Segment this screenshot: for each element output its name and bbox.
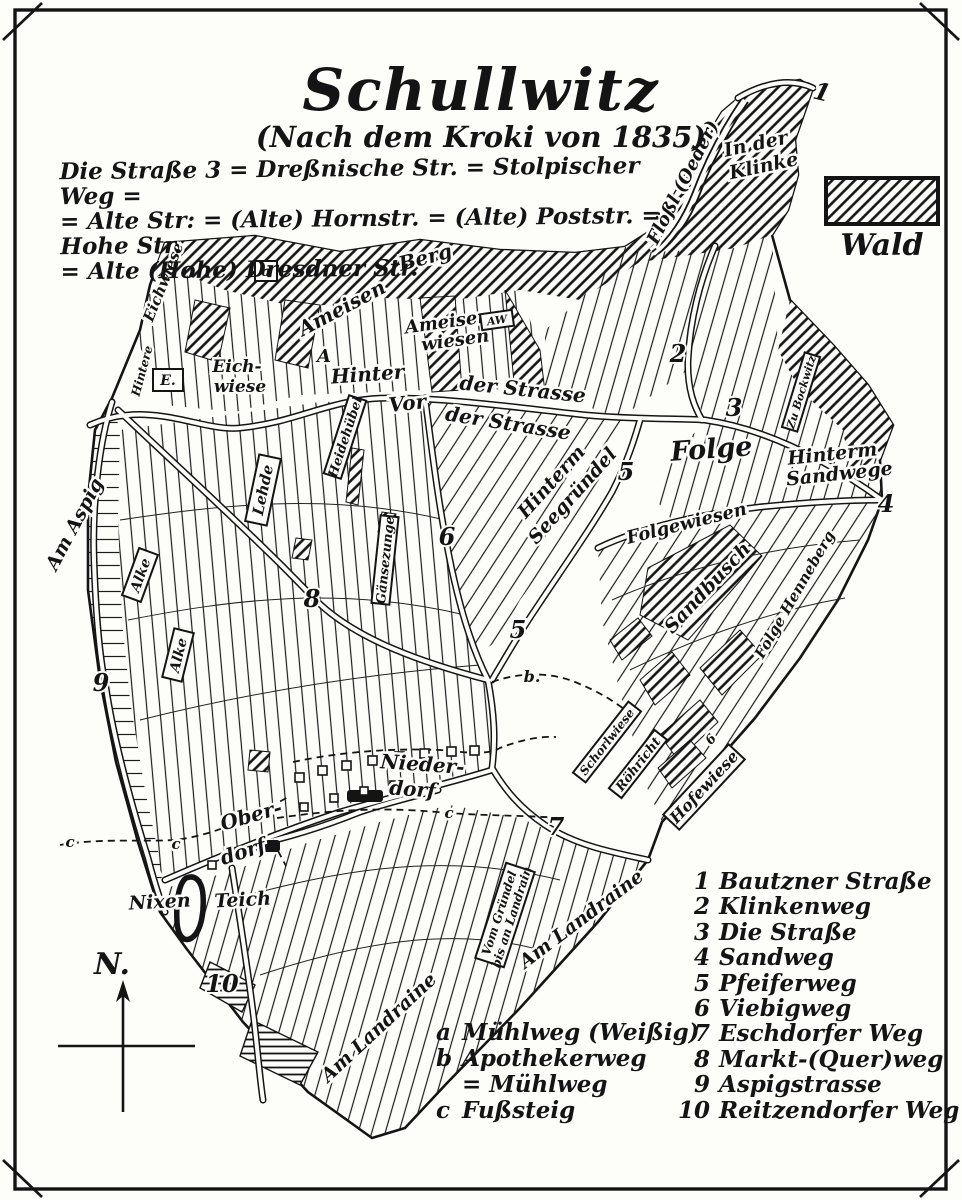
- label-vor: Vor: [387, 389, 428, 417]
- wald-patch: [292, 538, 312, 560]
- road-index-num: 2: [664, 894, 719, 919]
- path-index-key: c: [436, 1098, 462, 1124]
- letter-c-3: c: [65, 833, 74, 851]
- road-index-name: Aspigstrasse: [719, 1072, 882, 1097]
- road-index-num: 1: [664, 869, 719, 894]
- road-index-name: Die Straße: [719, 920, 857, 945]
- road-index-name: Klinkenweg: [719, 894, 871, 919]
- road-index-row: 10Reitzendorfer Weg: [664, 1098, 959, 1123]
- corner-mark-bottom-left: [3, 1160, 42, 1197]
- road-index-row: 4Sandweg: [664, 945, 959, 970]
- road-index-row: 2Klinkenweg: [664, 894, 959, 919]
- path-index: aMühlweg (Weißig) bApothekerweg = Mühlwe…: [436, 1020, 700, 1124]
- compass-north-label: N.: [93, 947, 130, 982]
- road-index: 1Bautzner Straße 2Klinkenweg 3Die Straße…: [664, 869, 959, 1123]
- road-index-name: Sandweg: [719, 945, 834, 970]
- wald-patch: [248, 750, 270, 772]
- road-number-5-lower: 5: [510, 615, 527, 644]
- road-index-name: Reitzendorfer Weg: [719, 1098, 959, 1123]
- road-index-name: Pfeiferweg: [719, 971, 857, 996]
- label-dorf-1: dorf: [388, 775, 439, 802]
- label-aw-box: AW: [480, 310, 514, 330]
- road-number-5-upper: 5: [618, 457, 635, 486]
- legend-wald-label: Wald: [826, 228, 938, 263]
- path-index-key: b: [436, 1046, 462, 1072]
- corner-mark-bottom-right: [920, 1160, 959, 1197]
- letter-b-dot: b.: [524, 667, 541, 686]
- legend-wald-swatch: [826, 178, 938, 224]
- path-index-name: Apothekerweg: [462, 1046, 646, 1072]
- map-subtitle: (Nach dem Kroki von 1835): [0, 120, 962, 154]
- path-index-row: = Mühlweg: [436, 1072, 700, 1098]
- road-number-10: 10: [205, 969, 239, 998]
- road-index-row: 8Markt-(Quer)weg: [664, 1047, 959, 1072]
- note-line-2: = Alte Str: = (Alte) Hornstr. = (Alte) P…: [60, 203, 680, 259]
- road-index-row: 7Eschdorfer Weg: [664, 1021, 959, 1046]
- letter-a-cap: A: [315, 346, 331, 367]
- path-index-name: Fußsteig: [462, 1098, 575, 1124]
- letter-c-2: c: [444, 804, 453, 822]
- road-index-row: 9Aspigstrasse: [664, 1072, 959, 1097]
- label-folge: Folge: [668, 431, 753, 468]
- svg-text:E.: E.: [159, 373, 176, 389]
- road-number-9: 9: [93, 668, 110, 697]
- road-index-row: 6Viebigweg: [664, 996, 959, 1021]
- road-index-name: Eschdorfer Weg: [719, 1021, 923, 1046]
- road-index-name: Viebigweg: [719, 996, 851, 1021]
- road-number-4: 4: [878, 489, 895, 518]
- road-index-name: Markt-(Quer)weg: [719, 1047, 943, 1072]
- road-index-row: 3Die Straße: [664, 920, 959, 945]
- road-number-7: 7: [548, 812, 565, 841]
- compass: [58, 980, 195, 1112]
- path-index-key: a: [436, 1020, 462, 1046]
- label-teich: Teich: [214, 888, 272, 913]
- letter-c-1: c: [171, 835, 180, 853]
- road-index-num: 6: [664, 996, 719, 1021]
- road-number-8: 8: [303, 584, 321, 613]
- road-number-2: 2: [669, 339, 687, 368]
- road-index-row: 5Pfeiferweg: [664, 971, 959, 996]
- path-index-row: cFußsteig: [436, 1098, 700, 1124]
- label-wiese: wiese: [214, 377, 266, 397]
- road-number-3: 3: [726, 393, 743, 422]
- path-index-key: [436, 1072, 462, 1098]
- road-index-name: Bautzner Straße: [719, 869, 932, 894]
- road-index-num: 5: [664, 971, 719, 996]
- map-title: Schullwitz: [0, 56, 962, 124]
- road-number-6: 6: [439, 522, 456, 551]
- map-sheet: N. Flößl (Oeder) In der Klinke Eichwiese…: [0, 0, 962, 1200]
- path-index-name: = Mühlweg: [462, 1072, 607, 1098]
- label-eich: Eich-: [211, 357, 261, 377]
- label-nixen: Nixen: [127, 889, 191, 914]
- road-index-row: 1Bautzner Straße: [664, 869, 959, 894]
- note-line-1: Die Straße 3 = Dreßnische Str. = Stolpis…: [59, 153, 679, 209]
- road-index-num: 4: [664, 945, 719, 970]
- path-index-row: aMühlweg (Weißig): [436, 1020, 700, 1046]
- street-equivalence-note: Die Straße 3 = Dreßnische Str. = Stolpis…: [59, 153, 680, 284]
- path-index-name: Mühlweg (Weißig): [462, 1020, 700, 1046]
- road-index-num: 3: [664, 920, 719, 945]
- label-e-box: E.: [153, 369, 183, 391]
- path-index-row: bApothekerweg: [436, 1046, 700, 1072]
